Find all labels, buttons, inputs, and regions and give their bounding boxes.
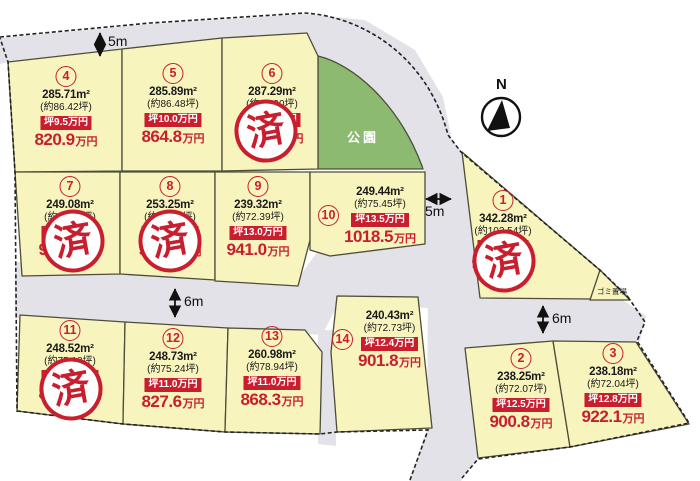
plot-10-price: 1018.5万円 [344, 228, 416, 247]
road-width-label-center: 5m [425, 203, 444, 219]
plot-1-area: 342.28m² [479, 213, 527, 226]
plot-9-number: 9 [247, 176, 268, 197]
plot-14-price-unit: 万円 [399, 357, 421, 369]
lot-map: 5m 5m 6m 6m 公園 N ゴミ置場 1342.28m²(約103.54坪… [0, 0, 700, 481]
plot-5-tsubo: (約86.48坪) [147, 99, 199, 111]
plot-10-unit-price: 坪13.5万円 [351, 213, 408, 228]
north-compass-icon [482, 98, 520, 136]
plot-3-unit-price: 坪12.8万円 [584, 393, 641, 408]
plot-12-details: 248.73m²(約75.24坪)坪11.0万円827.6万円 [141, 351, 204, 412]
plot-1-number: 1 [492, 190, 513, 211]
plot-11-number: 11 [59, 320, 80, 341]
plot-3-area: 238.18m² [589, 366, 637, 379]
plot-4-details: 285.71m²(約86.42坪)坪9.5万円820.9万円 [34, 89, 97, 150]
plot-10-area: 249.44m² [356, 186, 404, 199]
plot-10-tsubo: (約75.45坪) [354, 199, 406, 211]
plot-5-details: 285.89m²(約86.48坪)坪10.0万円864.8万円 [141, 86, 204, 147]
plot-4-tsubo: (約86.42坪) [40, 102, 92, 114]
plot-4-price: 820.9万円 [34, 131, 97, 150]
plot-13-tsubo: (約78.94坪) [246, 362, 298, 374]
plot-12-info: 12248.73m²(約75.24坪)坪11.0万円827.6万円 [141, 328, 204, 412]
plot-6-number: 6 [261, 63, 282, 84]
plot-3-price-unit: 万円 [623, 413, 645, 425]
plot-10-number: 10 [318, 205, 339, 226]
plot-12-unit-price: 坪11.0万円 [145, 378, 202, 393]
plot-13-price: 868.3万円 [240, 391, 303, 410]
plot-5-number: 5 [162, 63, 183, 84]
plot-4-price-value: 820.9 [34, 130, 74, 149]
plot-9-tsubo: (約72.39坪) [232, 212, 284, 224]
plot-12-price-value: 827.6 [141, 392, 181, 411]
plot-4-area: 285.71m² [42, 89, 90, 102]
plot-9-price: 941.0万円 [226, 241, 289, 260]
plot-2-unit-price: 坪12.5万円 [492, 398, 549, 413]
plot-14-details: 240.43m²(約72.73坪)坪12.4万円901.8万円 [358, 310, 421, 371]
plot-3-info: 3238.18m²(約72.04坪)坪12.8万円922.1万円 [581, 343, 644, 427]
plot-2-number: 2 [510, 348, 531, 369]
plot-9-unit-price: 坪13.0万円 [229, 226, 286, 241]
park-label: 公園 [347, 127, 379, 146]
plot-5-price-unit: 万円 [183, 133, 205, 145]
plot-2-details: 238.25m²(約72.07坪)坪12.5万円900.8万円 [489, 371, 552, 432]
plot-14-tsubo: (約72.73坪) [364, 323, 416, 335]
plot-14-price: 901.8万円 [358, 352, 421, 371]
plot-9-info: 9239.32m²(約72.39坪)坪13.0万円941.0万円 [226, 176, 289, 260]
plot-5-price-value: 864.8 [141, 127, 181, 146]
plot-12-price: 827.6万円 [141, 393, 204, 412]
plot-4-price-unit: 万円 [76, 136, 98, 148]
plot-9-price-unit: 万円 [268, 246, 290, 258]
road-width-label-right: 6m [552, 310, 571, 326]
road-width-label-left: 6m [184, 293, 203, 309]
plot-12-tsubo: (約75.24坪) [147, 364, 199, 376]
plot-13-price-unit: 万円 [282, 396, 304, 408]
plot-10-details: 249.44m²(約75.45坪)坪13.5万円1018.5万円 [344, 186, 416, 247]
plot-7-number: 7 [59, 176, 80, 197]
plot-10-price-unit: 万円 [394, 233, 416, 245]
plot-14-price-value: 901.8 [358, 351, 398, 370]
plot-14-info: 14240.43m²(約72.73坪)坪12.4万円901.8万円 [332, 310, 421, 371]
plot-12-number: 12 [162, 328, 183, 349]
plot-3-details: 238.18m²(約72.04坪)坪12.8万円922.1万円 [581, 366, 644, 427]
plot-6-area: 287.29m² [248, 86, 296, 99]
plot-10-price-value: 1018.5 [344, 227, 393, 246]
plot-13-info: 13260.98m²(約78.94坪)坪11.0万円868.3万円 [240, 326, 303, 410]
plot-12-area: 248.73m² [149, 351, 197, 364]
plot-4-number: 4 [55, 66, 76, 87]
plot-2-tsubo: (約72.07坪) [495, 384, 547, 396]
plot-2-price: 900.8万円 [489, 413, 552, 432]
plot-9-area: 239.32m² [234, 199, 282, 212]
plot-2-price-unit: 万円 [531, 418, 553, 430]
plot-9-price-value: 941.0 [226, 240, 266, 259]
plot-13-area: 260.98m² [248, 349, 296, 362]
plot-12-price-unit: 万円 [183, 398, 205, 410]
plot-5-price: 864.8万円 [141, 128, 204, 147]
plot-10-info: 10249.44m²(約75.45坪)坪13.5万円1018.5万円 [318, 186, 416, 247]
plot-3-price-value: 922.1 [581, 407, 621, 426]
plot-3-tsubo: (約72.04坪) [587, 379, 639, 391]
plot-13-number: 13 [261, 326, 282, 347]
road-width-label-top: 5m [108, 33, 127, 49]
plot-4-unit-price: 坪9.5万円 [40, 116, 92, 131]
plot-2-area: 238.25m² [497, 371, 545, 384]
plot-3-number: 3 [602, 343, 623, 364]
plot-13-details: 260.98m²(約78.94坪)坪11.0万円868.3万円 [240, 349, 303, 410]
plot-14-number: 14 [332, 329, 353, 350]
plot-8-number: 8 [159, 176, 180, 197]
plot-3-price: 922.1万円 [581, 408, 644, 427]
north-label: N [496, 76, 507, 93]
plot-5-unit-price: 坪10.0万円 [144, 113, 201, 128]
plot-2-info: 2238.25m²(約72.07坪)坪12.5万円900.8万円 [489, 348, 552, 432]
plot-4-info: 4285.71m²(約86.42坪)坪9.5万円820.9万円 [34, 66, 97, 150]
plot-2-price-value: 900.8 [489, 412, 529, 431]
plot-14-unit-price: 坪12.4万円 [361, 337, 418, 352]
plot-5-area: 285.89m² [149, 86, 197, 99]
plot-13-price-value: 868.3 [240, 390, 280, 409]
plot-14-area: 240.43m² [366, 310, 414, 323]
plot-11-area: 248.52m² [46, 343, 94, 356]
plot-13-unit-price: 坪11.0万円 [244, 376, 301, 391]
garbage-label: ゴミ置場 [597, 286, 627, 297]
plot-9-details: 239.32m²(約72.39坪)坪13.0万円941.0万円 [226, 199, 289, 260]
plot-5-info: 5285.89m²(約86.48坪)坪10.0万円864.8万円 [141, 63, 204, 147]
